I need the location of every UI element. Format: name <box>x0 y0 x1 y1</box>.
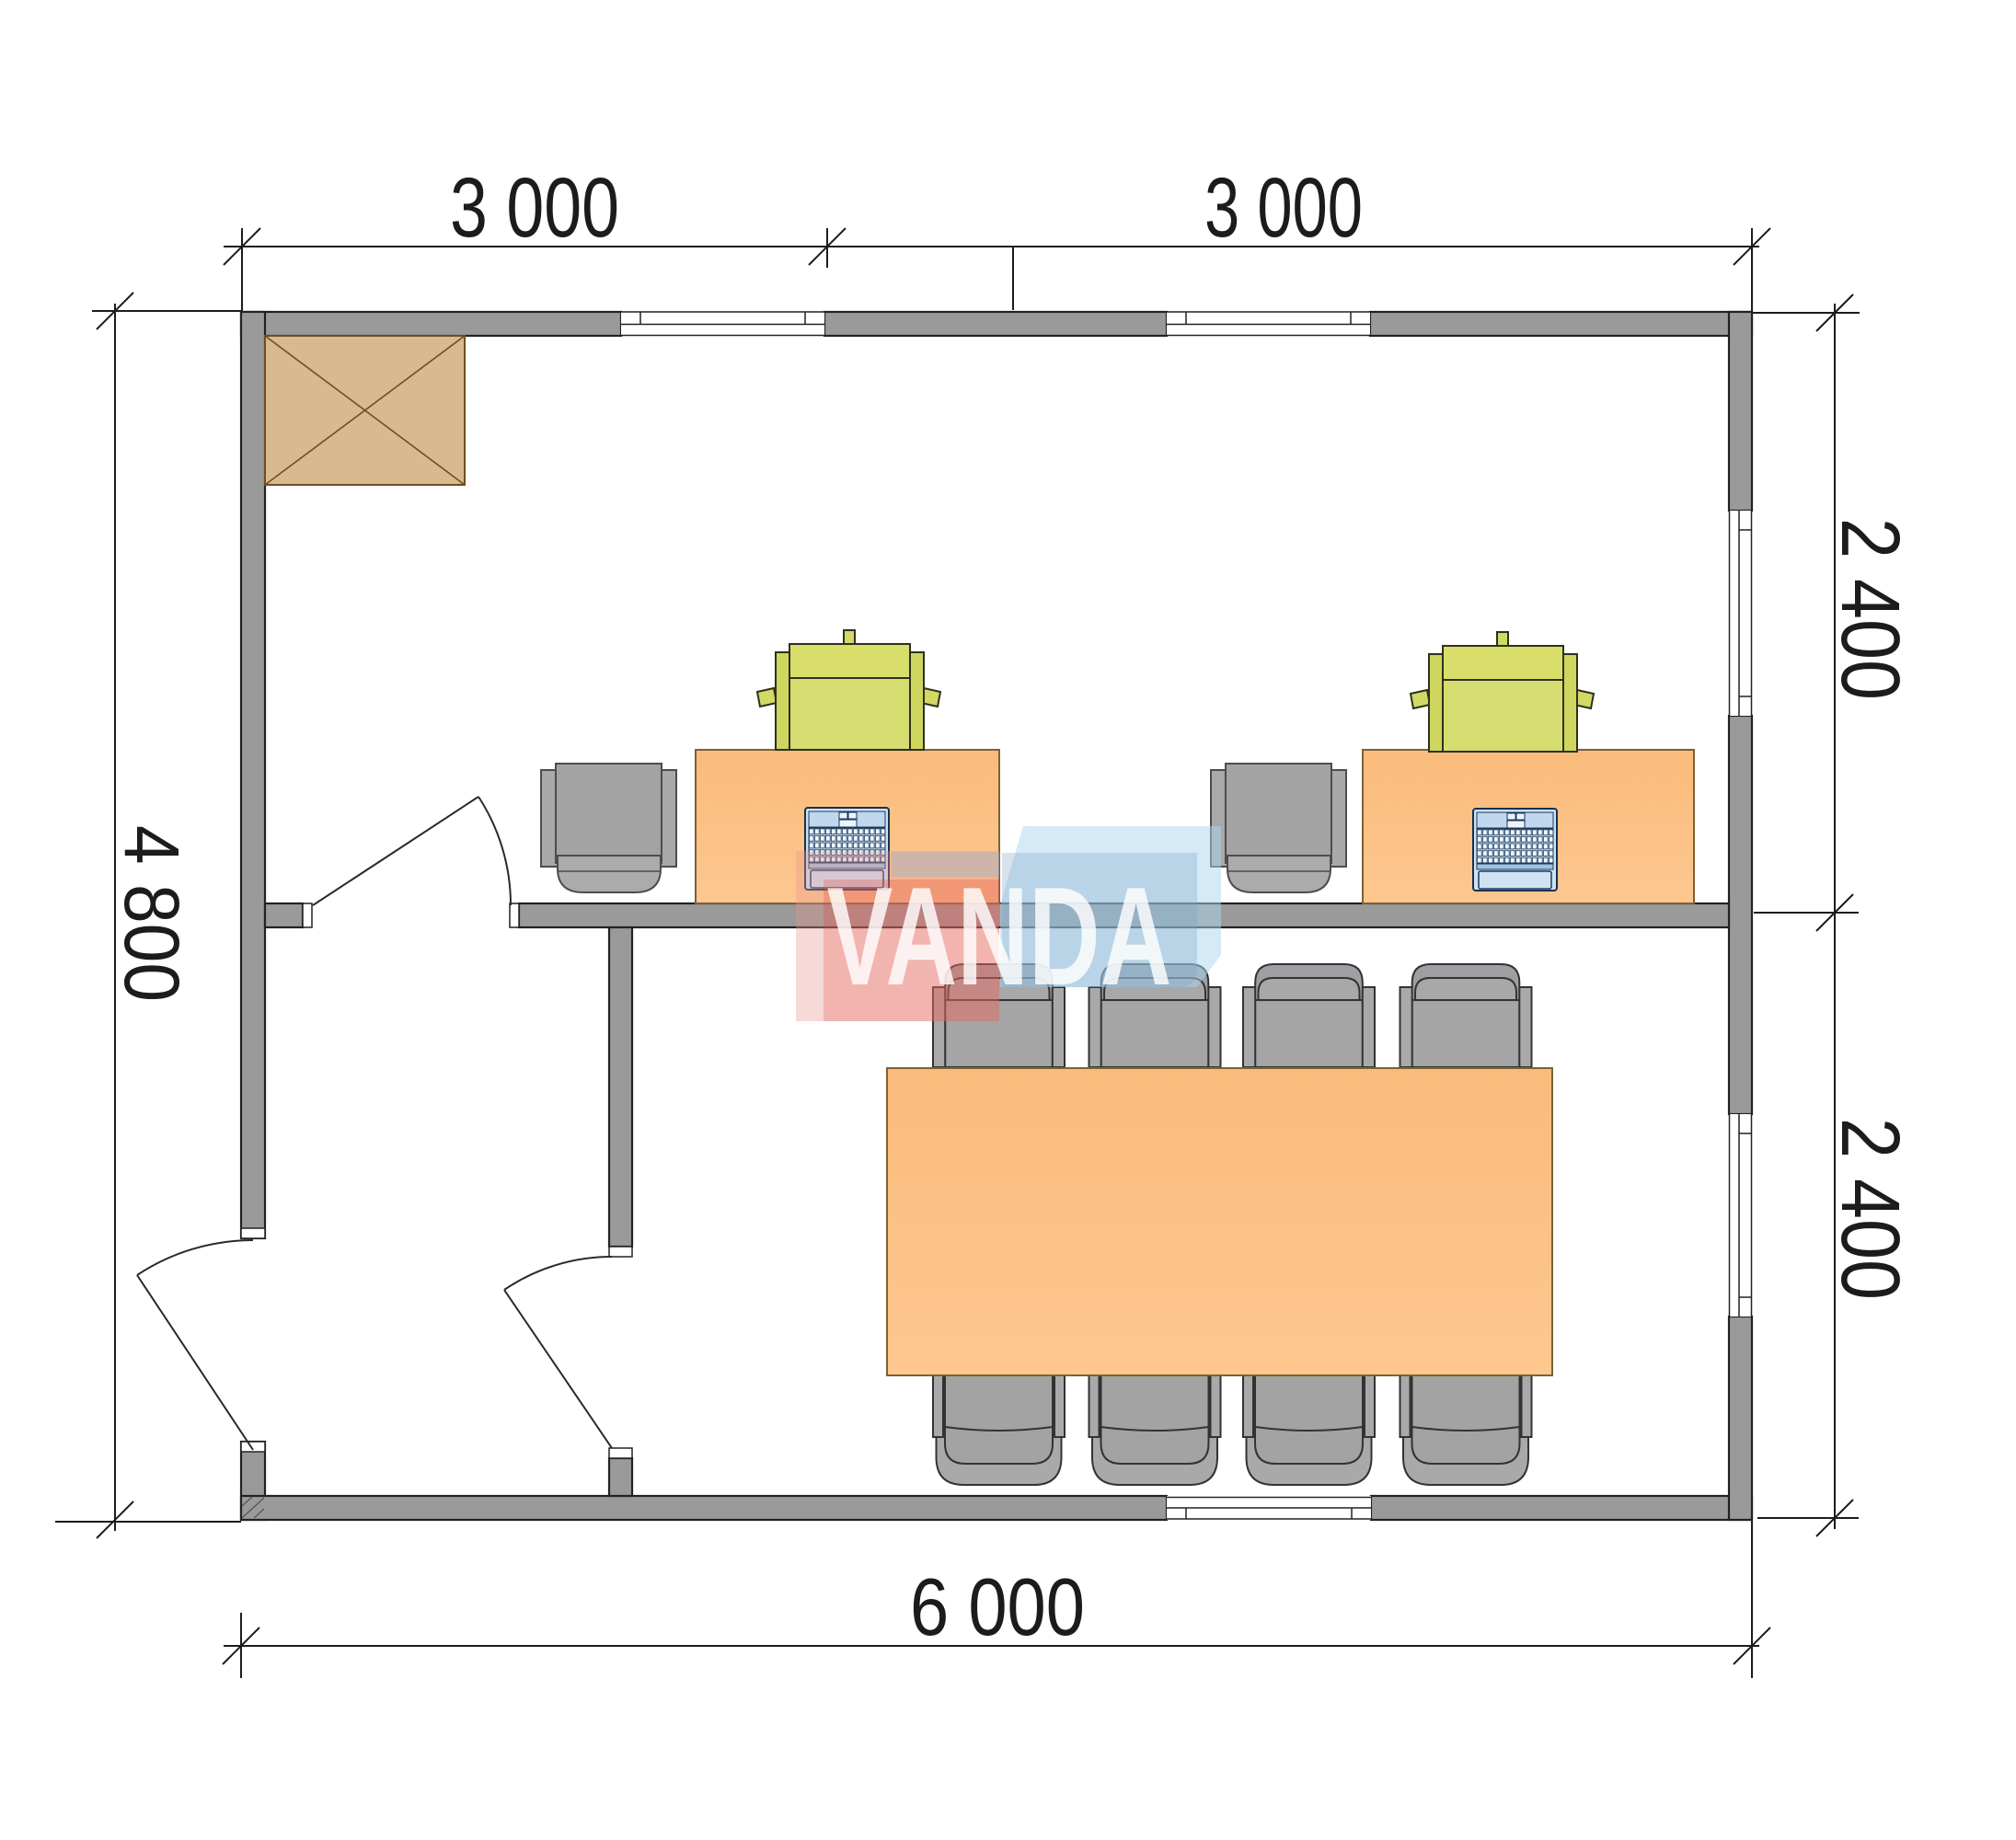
svg-text:6 000: 6 000 <box>910 1561 1085 1652</box>
svg-text:4 800: 4 800 <box>109 825 195 1002</box>
svg-text:VANDA: VANDA <box>827 858 1172 1015</box>
svg-text:2 400: 2 400 <box>1824 1118 1916 1300</box>
svg-text:2 400: 2 400 <box>1824 518 1916 700</box>
svg-text:3 000: 3 000 <box>450 161 619 255</box>
svg-text:3 000: 3 000 <box>1204 161 1363 255</box>
